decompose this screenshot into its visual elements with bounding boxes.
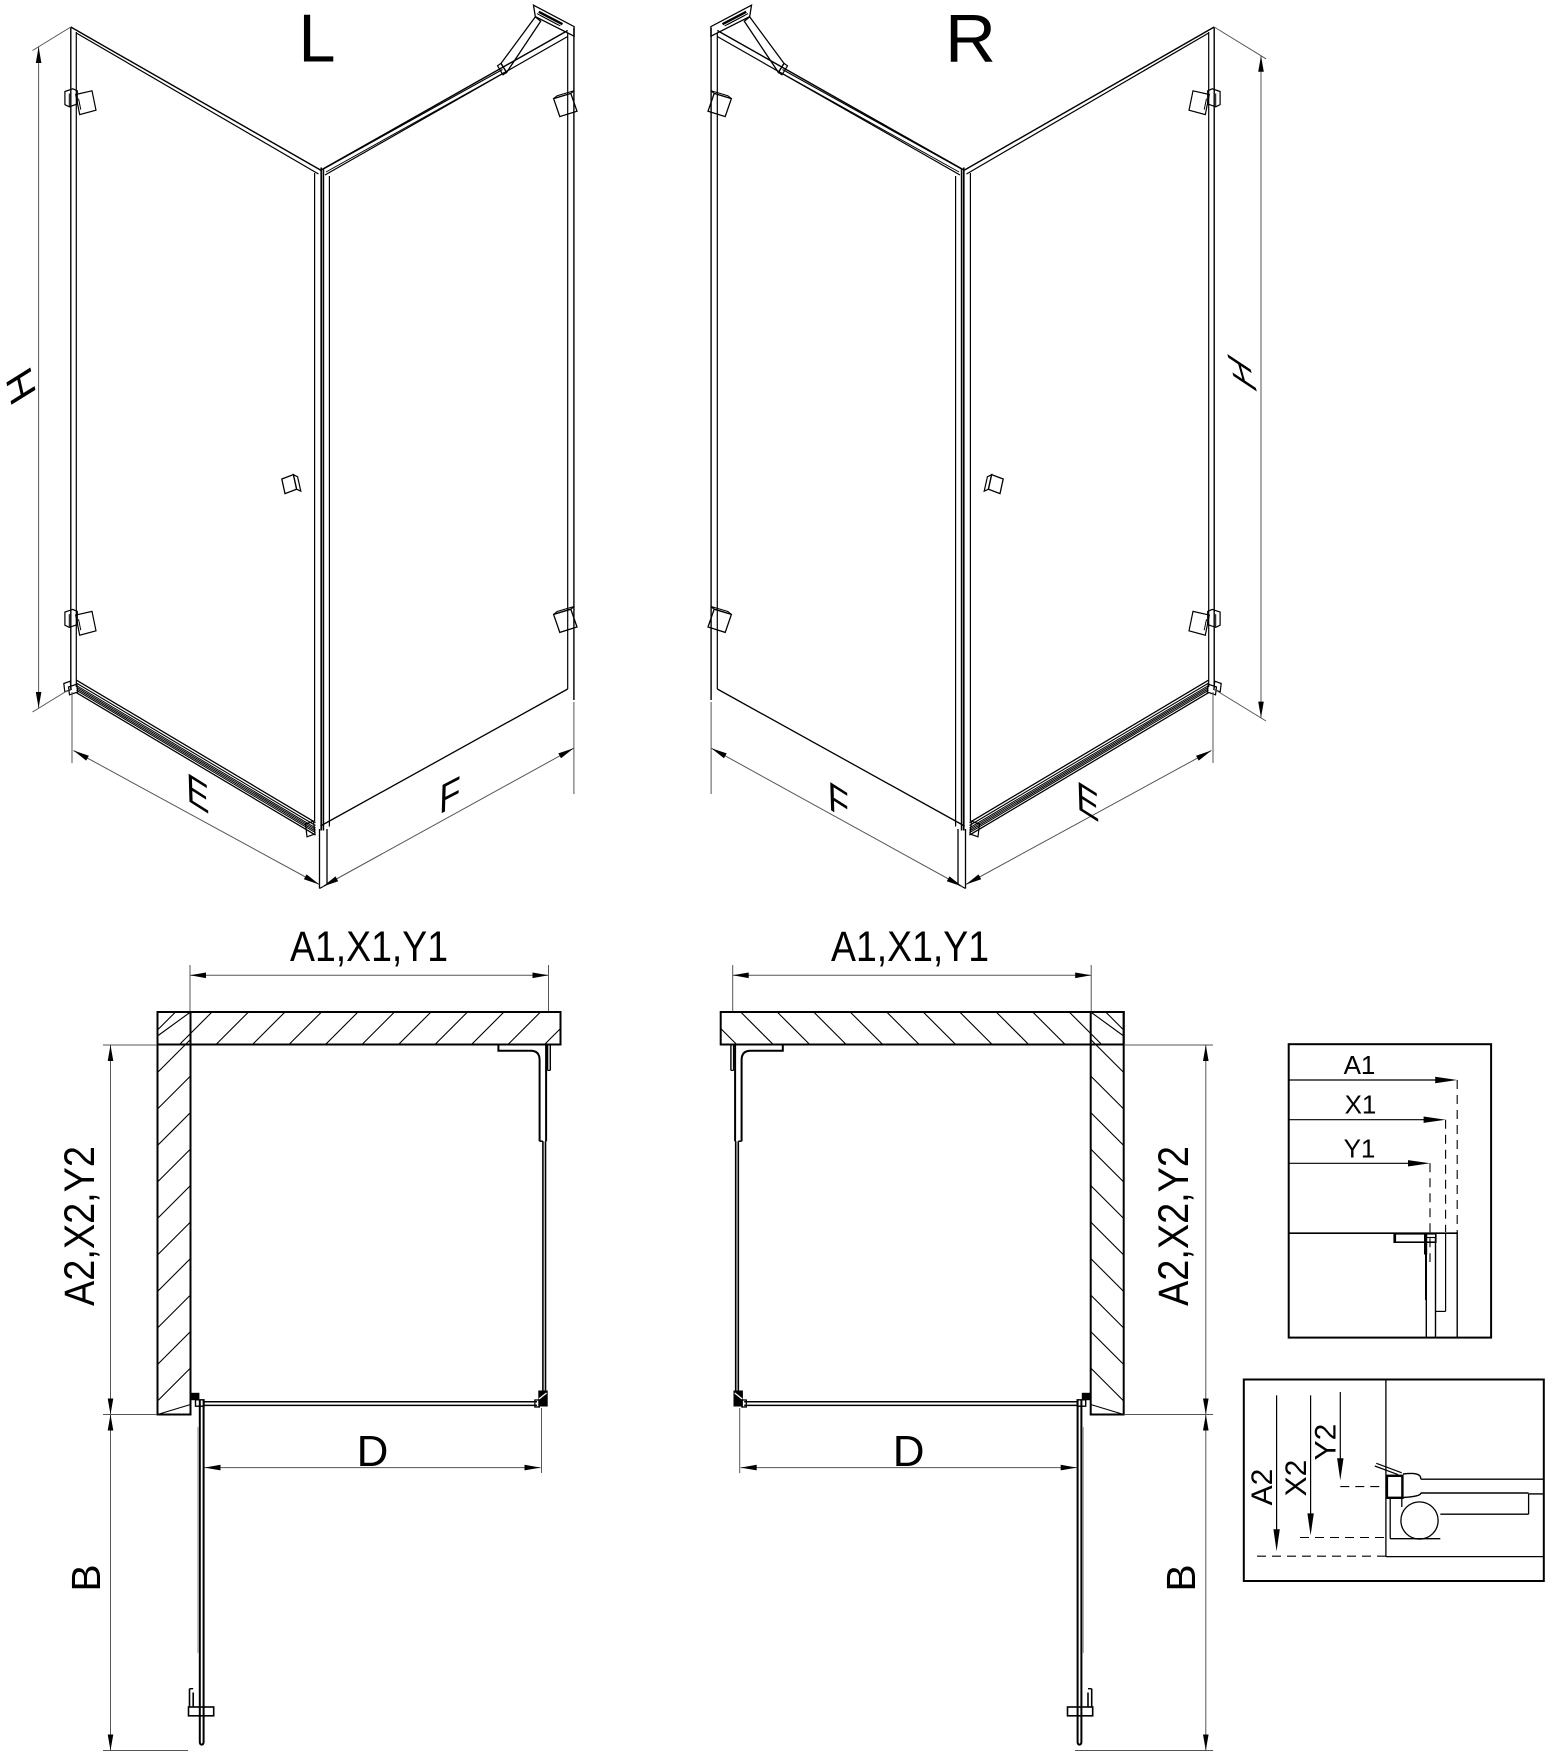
svg-text:A1,X1,Y1: A1,X1,Y1 [290,923,448,971]
svg-text:Y2: Y2 [1310,1424,1343,1461]
svg-text:A1: A1 [1344,1050,1376,1080]
svg-text:D: D [893,1427,925,1476]
svg-text:R: R [945,1,996,77]
svg-text:A2: A2 [1246,1469,1279,1506]
svg-text:D: D [357,1427,389,1476]
svg-text:A2,X2,Y2: A2,X2,Y2 [1150,1146,1198,1306]
svg-text:A2,X2,Y2: A2,X2,Y2 [56,1146,104,1306]
svg-text:X1: X1 [1345,1090,1377,1120]
svg-text:L: L [299,1,336,77]
svg-text:X2: X2 [1280,1460,1313,1497]
svg-text:A1,X1,Y1: A1,X1,Y1 [831,923,989,971]
svg-text:Y1: Y1 [1344,1134,1376,1164]
svg-text:B: B [63,1564,109,1591]
svg-text:B: B [1158,1564,1204,1591]
